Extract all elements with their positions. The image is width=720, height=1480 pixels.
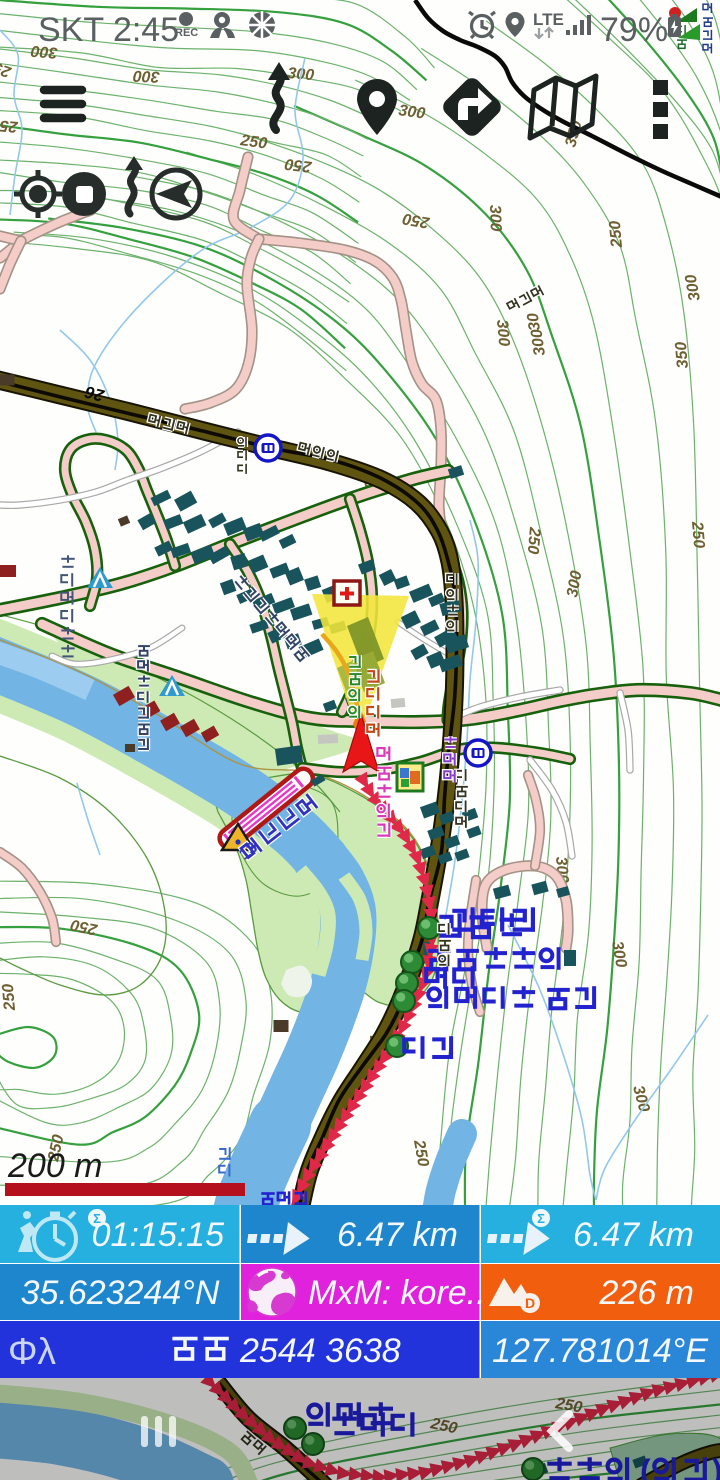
- svg-text:200 m: 200 m: [7, 1147, 103, 1185]
- svg-text:01:15:15: 01:15:15: [92, 1216, 224, 1254]
- svg-text:79%: 79%: [600, 11, 668, 49]
- svg-text:6.47 km: 6.47 km: [337, 1216, 458, 1254]
- svg-text:350: 350: [673, 341, 692, 369]
- svg-text:300: 300: [133, 67, 161, 85]
- svg-text:D: D: [525, 1295, 535, 1311]
- svg-text:250: 250: [0, 983, 19, 1012]
- svg-text:300: 300: [486, 205, 504, 232]
- svg-text:SKT 2:45: SKT 2:45: [38, 11, 179, 49]
- svg-text:2544 3638: 2544 3638: [239, 1332, 401, 1370]
- svg-text:250: 250: [688, 520, 707, 549]
- svg-text:MxM: kore..: MxM: kore..: [308, 1274, 486, 1312]
- svg-text:250: 250: [524, 526, 543, 555]
- svg-text:250: 250: [284, 155, 314, 175]
- svg-text:Φλ: Φλ: [8, 1331, 57, 1372]
- svg-text:Σ: Σ: [93, 1211, 101, 1226]
- svg-text:250: 250: [607, 220, 626, 249]
- svg-text:Σ: Σ: [537, 1211, 545, 1226]
- svg-text:250: 250: [0, 116, 19, 135]
- svg-text:LTE: LTE: [533, 10, 564, 29]
- svg-text:35.623244°N: 35.623244°N: [21, 1274, 220, 1312]
- svg-text:127.781014°E: 127.781014°E: [492, 1332, 708, 1370]
- svg-text:300: 300: [493, 319, 512, 347]
- svg-text:REC: REC: [175, 27, 198, 39]
- svg-text:226 m: 226 m: [599, 1274, 695, 1312]
- svg-text:6.47 km: 6.47 km: [573, 1216, 694, 1254]
